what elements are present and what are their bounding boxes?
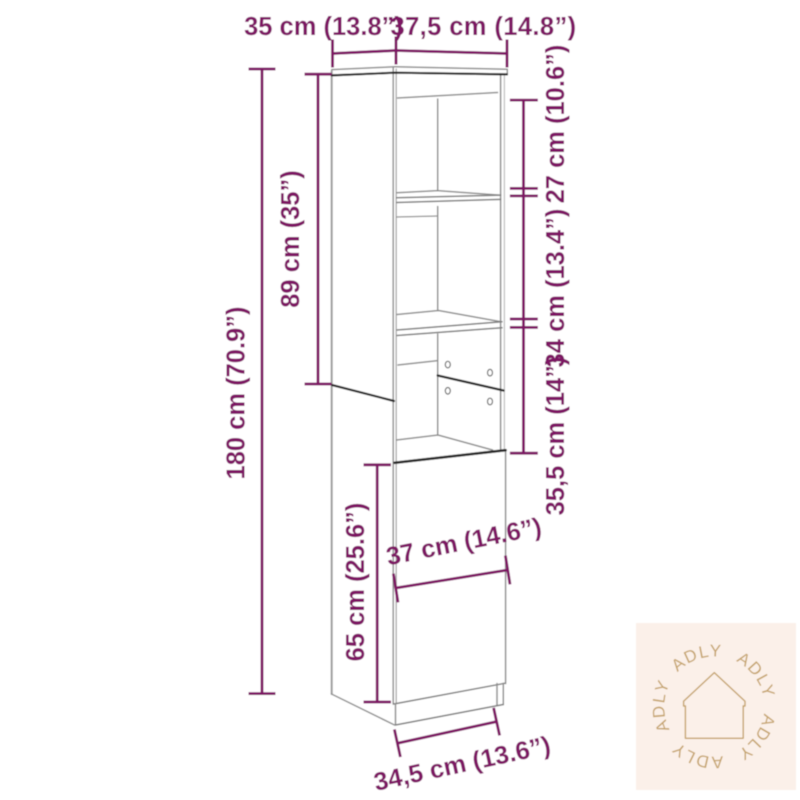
svg-text:180 cm (70.9”): 180 cm (70.9”) [223,307,251,480]
svg-text:27 cm (10.6”): 27 cm (10.6”) [542,45,570,204]
svg-text:34 cm (13.4”): 34 cm (13.4”) [542,209,570,368]
svg-text:35,5 cm (14”): 35,5 cm (14”) [542,357,570,516]
svg-text:35 cm (13.8”): 35 cm (13.8”) [244,13,403,41]
svg-text:65 cm (25.6”): 65 cm (25.6”) [342,503,370,662]
svg-text:89 cm (35”): 89 cm (35”) [277,170,305,308]
svg-text:37,5 cm (14.8”): 37,5 cm (14.8”) [390,13,576,41]
